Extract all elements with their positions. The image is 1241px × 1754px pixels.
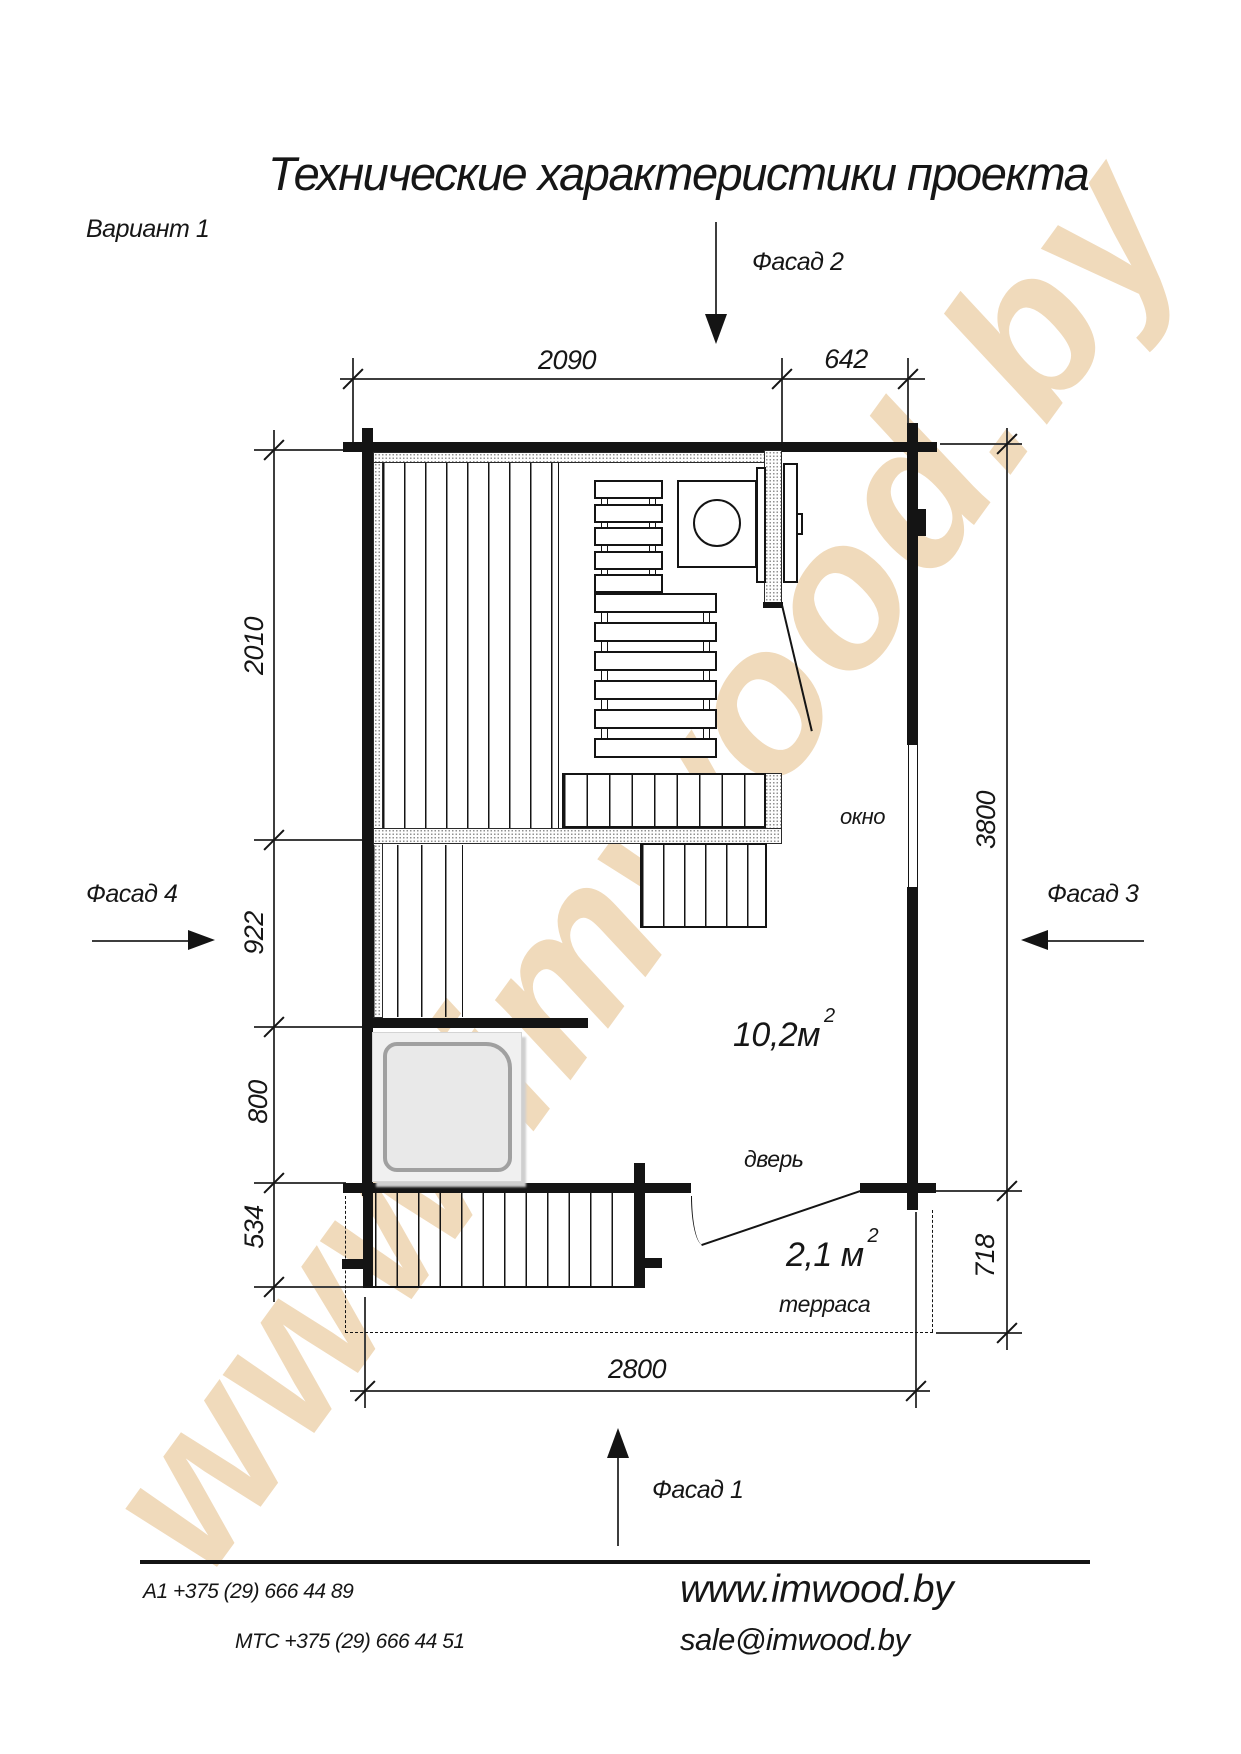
bench-slat [594, 574, 663, 593]
arrow-up-icon [607, 1428, 629, 1458]
terrace-outline-bottom [345, 1332, 933, 1333]
corner-stub [644, 1258, 662, 1268]
terrace-area-value: 2,1 м [786, 1236, 864, 1274]
arrow-down-icon [705, 314, 727, 344]
variant-label: Вариант 1 [86, 215, 209, 244]
terrace-post [634, 1163, 645, 1288]
dim-label-2090: 2090 [517, 345, 617, 376]
heat-shield-nub [796, 513, 803, 535]
washroom-bench [640, 843, 767, 928]
sauna-bench-lower [594, 593, 717, 758]
extension-line [940, 443, 1022, 444]
facade-1-label: Фасад 1 [652, 1476, 743, 1505]
dimension-line-left [273, 430, 275, 1302]
facade-2-arrow [715, 222, 717, 316]
arrow-right-icon [188, 930, 215, 950]
dim-label-718: 718 [970, 1206, 1000, 1306]
dimension-line-top [340, 378, 925, 380]
entrance-door-swing-arc [691, 1196, 703, 1245]
facade-1-arrow [617, 1456, 619, 1546]
facade-3-arrow [1048, 940, 1144, 942]
footer-email: sale@imwood.by [680, 1622, 910, 1658]
wall-right-lower [907, 887, 918, 1210]
dim-label-2010: 2010 [239, 596, 269, 696]
bench-slat [594, 680, 717, 700]
arrow-left-icon [1021, 930, 1048, 950]
sauna-partition-vertical-upper [764, 450, 782, 605]
sauna-step-platform [562, 773, 766, 828]
terrace-decking [375, 1193, 633, 1286]
sauna-door-jamb [756, 467, 766, 583]
wall-left-terrace [363, 1196, 373, 1288]
wall-bottom-right [860, 1183, 936, 1193]
bench-slat [594, 709, 717, 729]
bench-slat [594, 551, 663, 570]
extension-line [936, 1332, 1022, 1333]
bench-slat [594, 622, 717, 642]
bench-slat [594, 527, 663, 546]
terrace-edge-line [365, 1286, 634, 1288]
stove-burner-circle [693, 499, 741, 547]
wall-vent-nub [918, 509, 926, 536]
extension-line [781, 358, 782, 447]
washroom-floor-planks [373, 845, 463, 1017]
main-area-sup: 2 [824, 1005, 835, 1027]
footer-phone-mts: МТС +375 (29) 666 44 51 [235, 1630, 465, 1654]
terrace-outline-left [345, 1196, 346, 1333]
dim-label-3800: 3800 [971, 770, 1001, 870]
extension-line [907, 358, 908, 425]
partition-cap [763, 602, 783, 608]
terrace-outline-right [932, 1210, 933, 1332]
shower-tray-basin [383, 1042, 512, 1172]
bench-slat [594, 738, 717, 758]
bench-slat [594, 504, 663, 523]
extension-line [352, 358, 353, 444]
window-symbol [908, 745, 918, 887]
dim-label-800: 800 [243, 1052, 273, 1152]
terrace-area-label: 2,1 м2 [786, 1236, 878, 1275]
page-title: Технические характеристики проекта [268, 146, 1088, 201]
dim-label-2800: 2800 [587, 1354, 687, 1385]
sauna-partition-horizontal [373, 828, 782, 844]
sauna-lining-top [373, 452, 765, 463]
footer-phone-a1: А1 +375 (29) 666 44 89 [143, 1580, 353, 1604]
window-label: окно [840, 804, 885, 830]
dimension-line-right [1006, 428, 1008, 1350]
facade-2-label: Фасад 2 [752, 248, 843, 277]
dim-label-922: 922 [239, 883, 269, 983]
terrace-label: терраса [779, 1291, 870, 1318]
drawing-sheet: www.imwood.by Технические характеристики… [0, 0, 1241, 1754]
dim-label-534: 534 [239, 1177, 269, 1277]
extension-line [254, 449, 345, 450]
sauna-floor-planks [383, 463, 559, 828]
sauna-partition-vertical-lower [764, 773, 782, 831]
wall-top [343, 442, 937, 452]
facade-3-label: Фасад 3 [1047, 880, 1138, 909]
wall-right-upper [907, 423, 918, 745]
bench-slat [594, 593, 717, 613]
wall-inner-hall [362, 1018, 588, 1028]
sauna-bench-upper [594, 480, 663, 593]
footer-website: www.imwood.by [680, 1568, 953, 1612]
main-area-label: 10,2м2 [733, 1016, 835, 1055]
door-label: дверь [744, 1146, 803, 1173]
footer-divider [140, 1560, 1090, 1564]
extension-line [915, 1212, 916, 1408]
main-area-value: 10,2м [733, 1016, 820, 1054]
facade-4-arrow [92, 940, 189, 942]
bench-slat [594, 651, 717, 671]
terrace-area-sup: 2 [868, 1225, 879, 1247]
bench-slat [594, 480, 663, 499]
facade-4-label: Фасад 4 [86, 880, 177, 909]
dimension-line-bottom [350, 1390, 930, 1392]
dim-label-642: 642 [806, 344, 886, 375]
